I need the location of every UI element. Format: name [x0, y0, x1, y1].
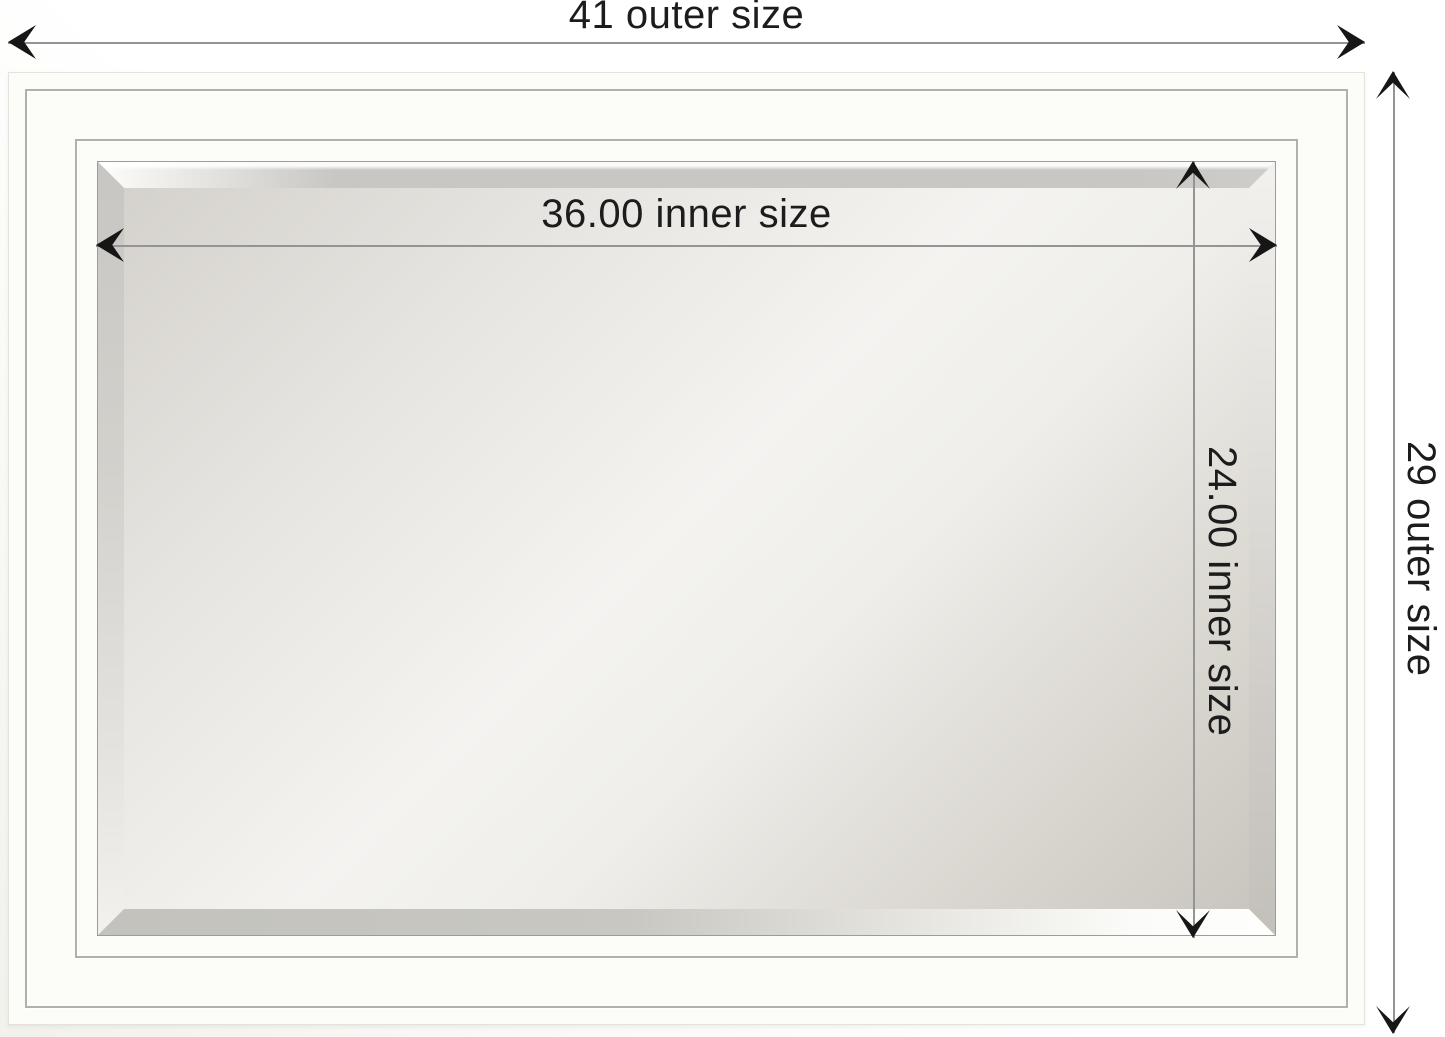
outer-height-line — [1393, 72, 1395, 1033]
mirror-bevel-top — [98, 162, 1275, 188]
outer-width-line — [8, 42, 1365, 44]
outer-height-label: 29 outer size — [1400, 441, 1442, 677]
inner-height-line — [1193, 161, 1195, 938]
outer-width-label: 41 outer size — [8, 0, 1365, 36]
inner-width-label: 36.00 inner size — [96, 193, 1277, 235]
mirror-bevel-bottom — [98, 909, 1275, 935]
inner-width-line — [96, 245, 1277, 247]
mirror-bevel-left — [98, 162, 124, 935]
inner-height-label: 24.00 inner size — [1201, 446, 1243, 736]
mirror-dimension-diagram: 41 outer size 29 outer size 36.00 inner … — [0, 0, 1445, 1037]
mirror-glass — [124, 188, 1249, 909]
mirror-opening — [97, 161, 1276, 936]
mirror-bevel-right — [1249, 162, 1275, 935]
